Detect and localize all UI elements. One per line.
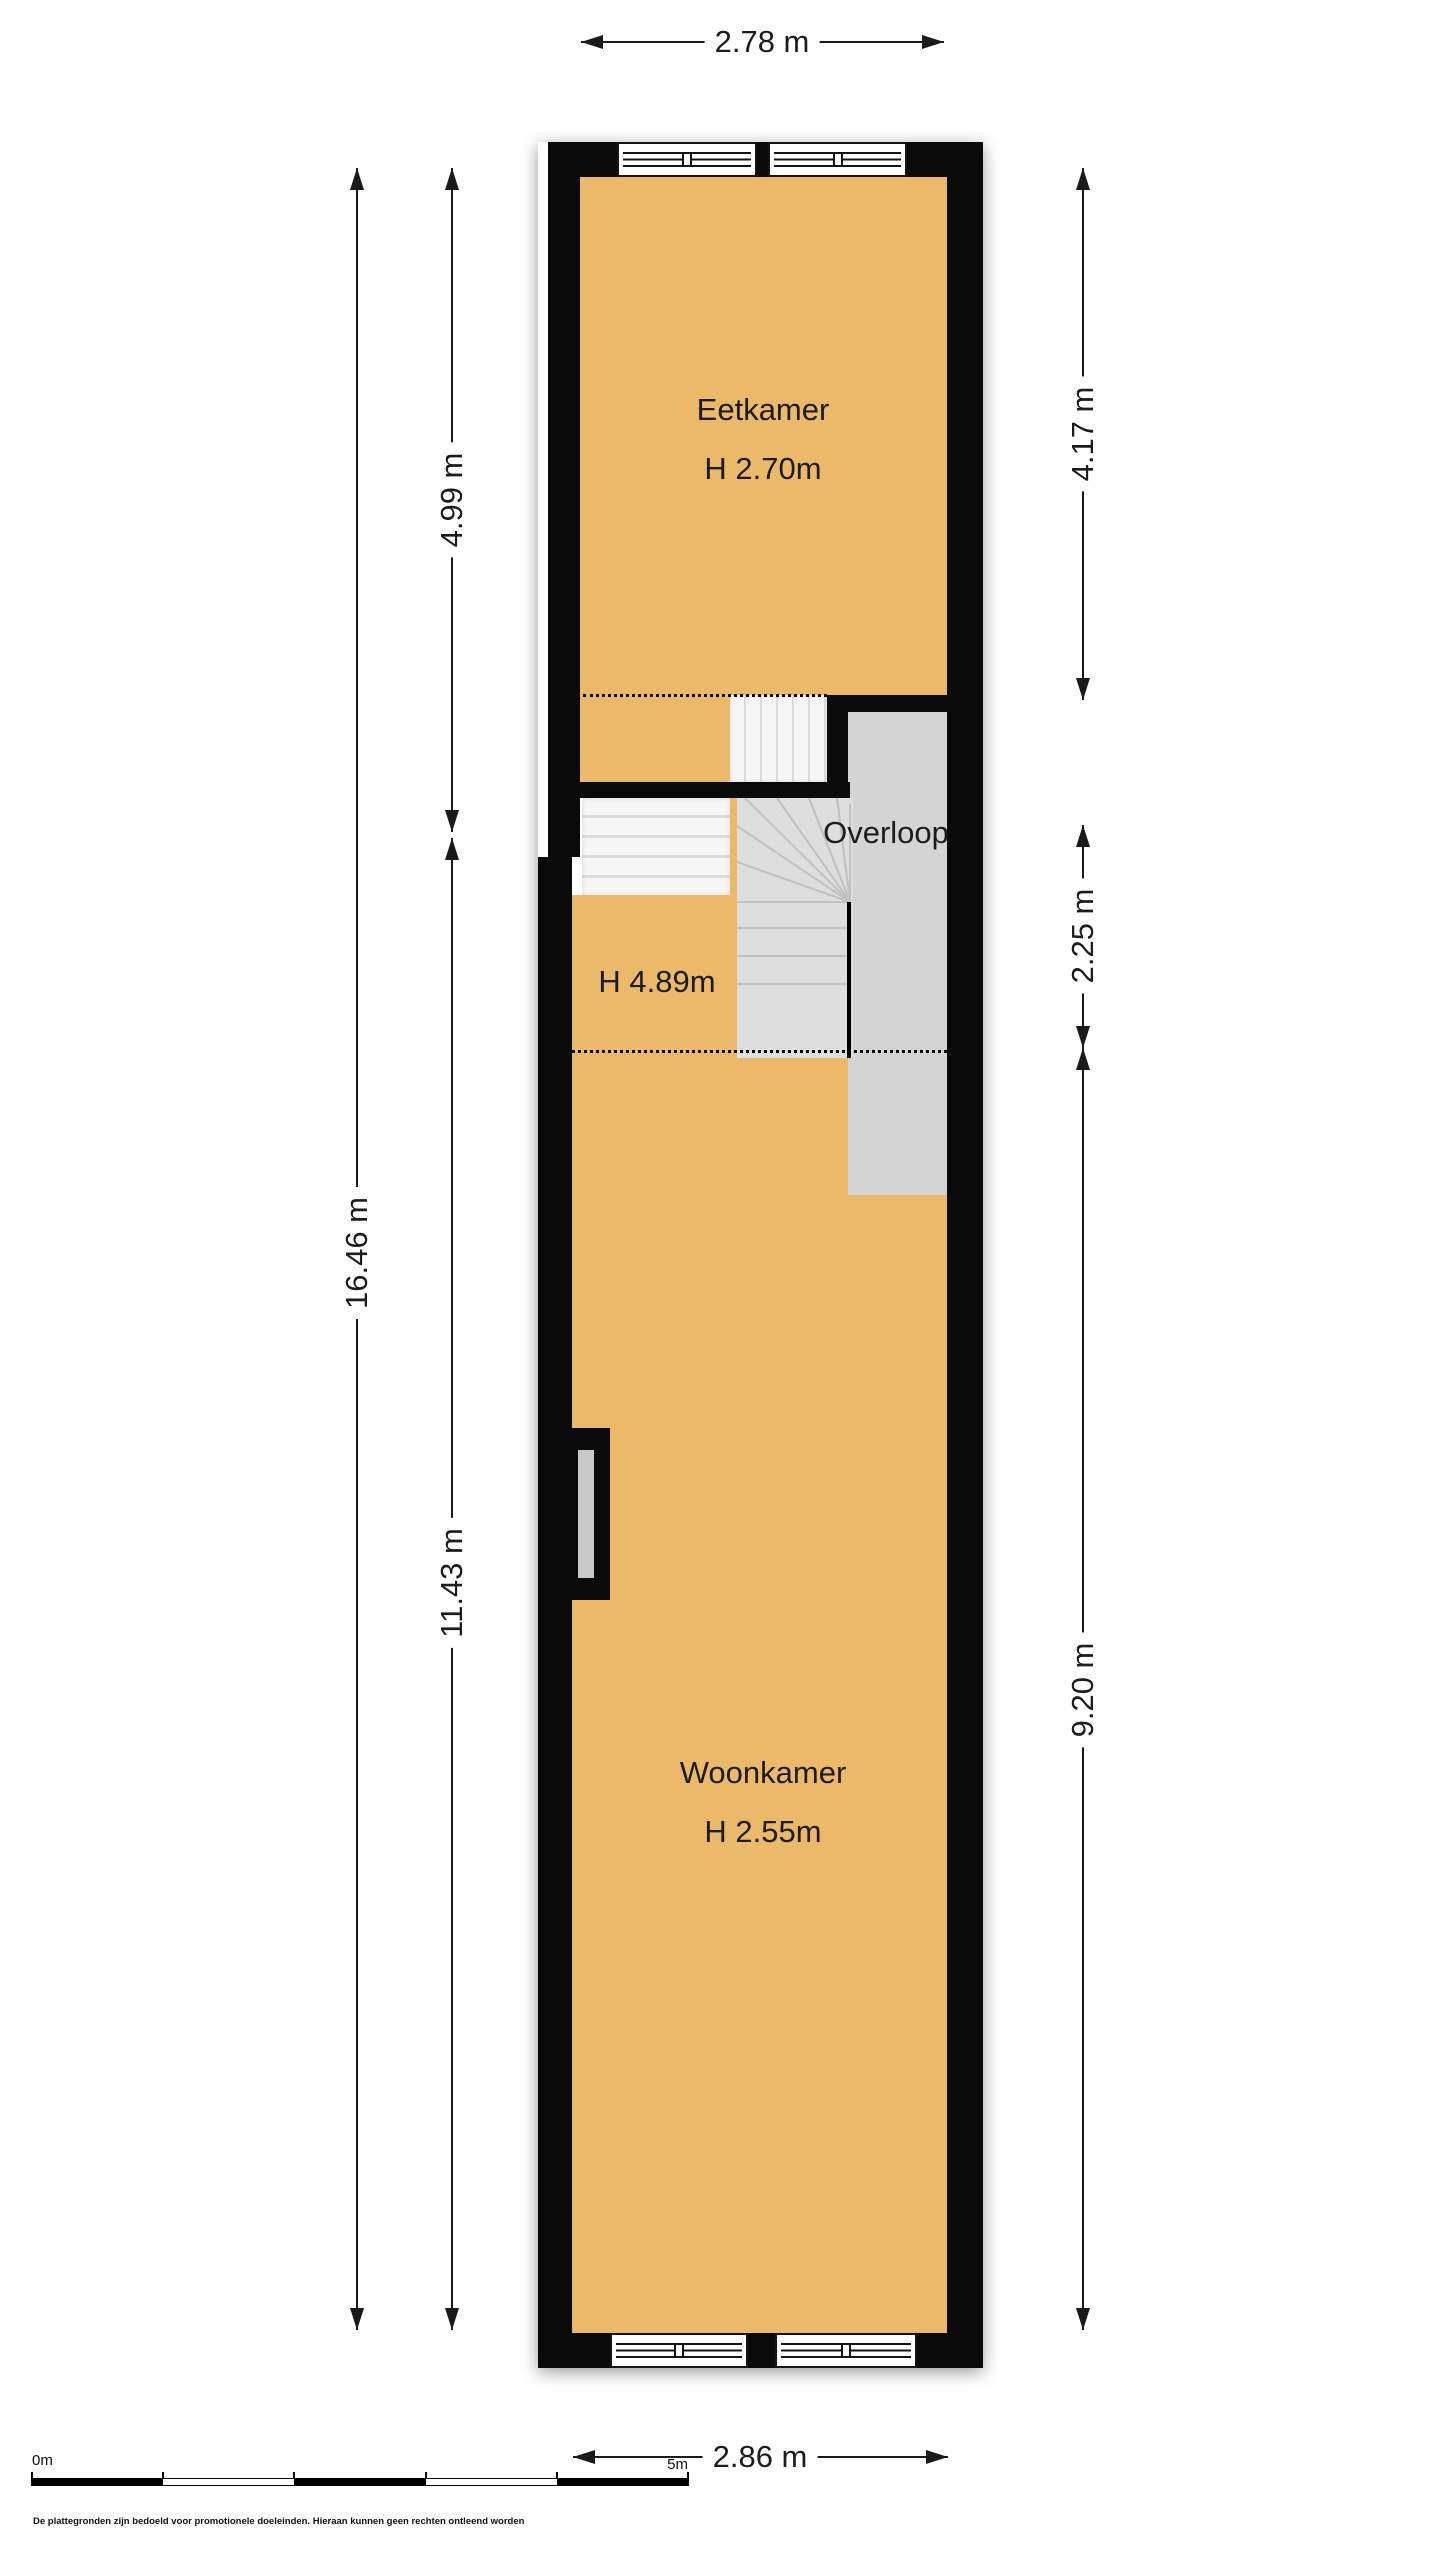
room-label-woonkamer: Woonkamer bbox=[680, 1755, 847, 1791]
wall-left-upper bbox=[548, 142, 580, 857]
wall-top-left-corner bbox=[548, 142, 617, 177]
wall-bottom-right-corner bbox=[917, 2333, 983, 2368]
window-top-2 bbox=[768, 142, 907, 177]
window-divider bbox=[674, 2345, 684, 2356]
wall-top-mullion bbox=[757, 142, 768, 177]
arrow-up-icon bbox=[1076, 168, 1090, 190]
wall-stair-middle bbox=[580, 782, 850, 798]
room-label-overloop: Overloop bbox=[823, 815, 949, 851]
wall-bottom-left-corner bbox=[538, 2333, 610, 2368]
dotted-line-woonkamer bbox=[572, 1050, 947, 1053]
arrow-left-icon bbox=[581, 35, 603, 49]
window-top-1 bbox=[617, 142, 757, 177]
arrow-down-icon bbox=[1076, 2308, 1090, 2330]
wall-left-lower bbox=[538, 857, 572, 2368]
wall-top-right-corner bbox=[907, 142, 983, 177]
window-glazing bbox=[623, 152, 751, 167]
arrow-up-icon bbox=[350, 168, 364, 190]
scalebar-segment bbox=[162, 2478, 294, 2486]
window-glazing bbox=[774, 152, 901, 167]
room-overloop-floor bbox=[848, 712, 947, 1195]
ceiling-label-woonkamer: H 2.55m bbox=[704, 1814, 821, 1850]
wall-bottom-mullion bbox=[748, 2333, 775, 2368]
arrow-up-icon bbox=[1076, 1048, 1090, 1070]
floor-left-of-stair bbox=[580, 695, 730, 782]
dim-label-left-upper: 4.99 m bbox=[432, 443, 472, 558]
room-woonkamer-floor bbox=[572, 1053, 947, 2333]
ceiling-label-eetkamer: H 2.70m bbox=[704, 451, 821, 487]
dim-label-right-upper: 4.17 m bbox=[1063, 377, 1103, 492]
window-divider bbox=[833, 154, 843, 165]
disclaimer-text: De plattegronden zijn bedoeld voor promo… bbox=[33, 2516, 524, 2527]
window-glazing bbox=[616, 2343, 742, 2358]
stair-upper-flight bbox=[730, 695, 827, 782]
wall-overloop-top bbox=[827, 695, 947, 712]
floorplan-page: Eetkamer H 2.70m Overloop H 4.89m Woonka… bbox=[0, 0, 1440, 2560]
arrow-down-icon bbox=[445, 810, 459, 832]
arrow-up-icon bbox=[445, 168, 459, 190]
scalebar-zero-label: 0m bbox=[32, 2452, 53, 2469]
arrow-down-icon bbox=[1076, 678, 1090, 700]
dim-label-top: 2.78 m bbox=[705, 22, 820, 62]
arrow-right-icon bbox=[922, 35, 944, 49]
arrow-up-icon bbox=[445, 838, 459, 860]
scalebar-segment bbox=[295, 2478, 425, 2486]
scalebar-segment bbox=[425, 2478, 557, 2486]
scalebar-five-label: 5m bbox=[667, 2456, 688, 2473]
dim-label-bottom: 2.86 m bbox=[703, 2437, 818, 2477]
arrow-left-icon bbox=[573, 2450, 595, 2464]
window-bottom-1 bbox=[610, 2333, 748, 2368]
dim-label-right-middle: 2.25 m bbox=[1063, 879, 1103, 994]
wall-right bbox=[947, 142, 983, 2368]
room-label-eetkamer: Eetkamer bbox=[697, 392, 830, 428]
arrow-down-icon bbox=[445, 2308, 459, 2330]
dim-label-left-lower: 11.43 m bbox=[432, 1518, 472, 1648]
arrow-down-icon bbox=[1076, 1026, 1090, 1048]
scale-bar bbox=[32, 2478, 688, 2486]
arrow-up-icon bbox=[1076, 825, 1090, 847]
scalebar-segment bbox=[558, 2478, 688, 2486]
stair-lower-flight bbox=[582, 798, 730, 895]
arrow-down-icon bbox=[350, 2308, 364, 2330]
window-bottom-2 bbox=[775, 2333, 917, 2368]
window-divider bbox=[841, 2345, 851, 2356]
chimney-flue bbox=[578, 1450, 594, 1578]
scalebar-segment bbox=[32, 2478, 162, 2486]
dim-label-right-lower: 9.20 m bbox=[1063, 1633, 1103, 1748]
window-divider bbox=[682, 154, 692, 165]
floor-between-stairs bbox=[730, 798, 737, 895]
dotted-line-eetkamer bbox=[583, 694, 827, 697]
arrow-right-icon bbox=[926, 2450, 948, 2464]
dim-label-left-total: 16.46 m bbox=[337, 1187, 377, 1319]
window-glazing bbox=[781, 2343, 911, 2358]
room-eetkamer-floor bbox=[580, 177, 947, 695]
ceiling-label-stairwell: H 4.89m bbox=[598, 964, 715, 1000]
